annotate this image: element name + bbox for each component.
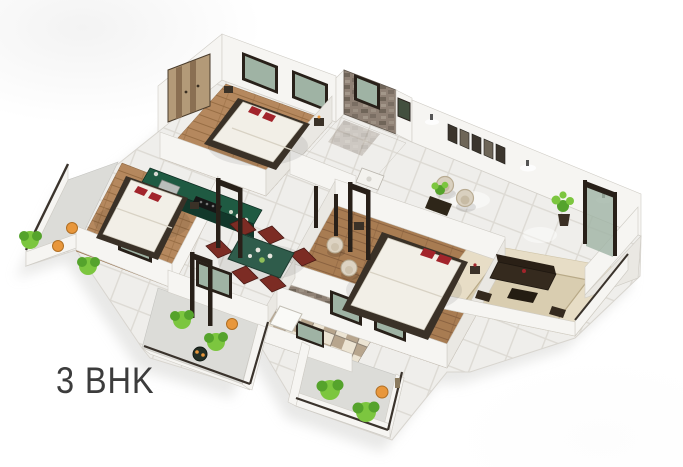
- floorplan-render-image: 3 BHK: [0, 0, 683, 467]
- terrace-glass-door: [583, 180, 617, 257]
- plan-title: 3 BHK: [56, 360, 155, 402]
- bath1-wall-jog: [336, 70, 344, 122]
